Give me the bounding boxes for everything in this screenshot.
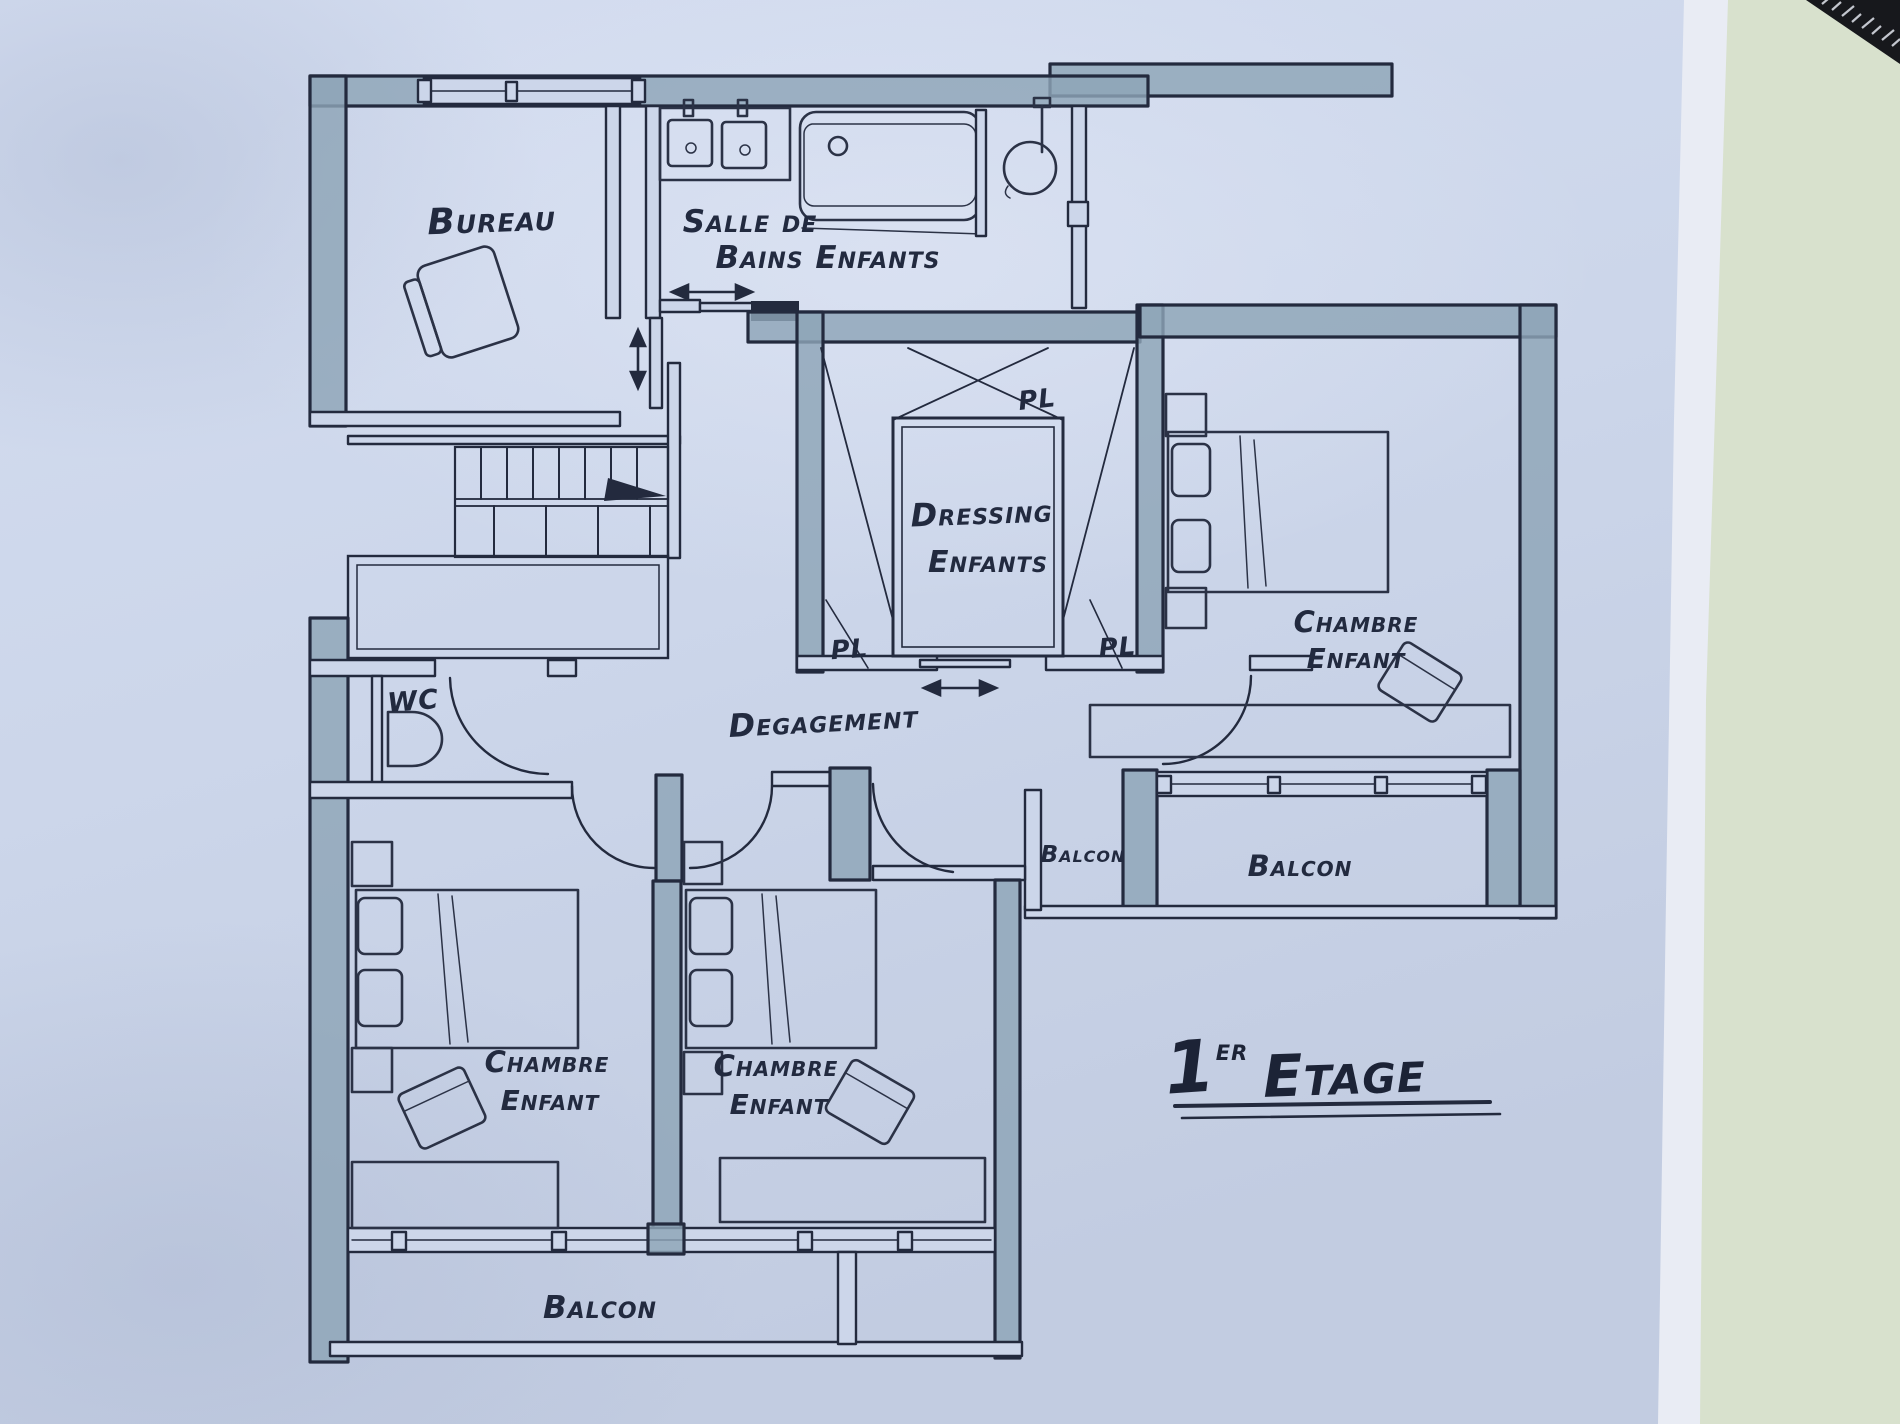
- wall-midroom-north: [772, 772, 830, 786]
- label-balcon-right: Balcon: [1248, 849, 1353, 883]
- title-ordinal: er: [1216, 1033, 1249, 1068]
- label-dressing-1: Dressing: [910, 492, 1053, 535]
- wall-bath-south: [660, 300, 700, 312]
- wall-wc-north: [310, 660, 435, 676]
- wall-east-outer: [1520, 305, 1556, 918]
- wall-west-south: [310, 618, 348, 1362]
- bureau-window: [418, 78, 645, 104]
- wall-west-north: [310, 76, 346, 426]
- label-chambre-middle-2: Enfant: [730, 1088, 829, 1121]
- label-chambre-left-1: Chambre: [485, 1045, 610, 1079]
- door-stub-central: [656, 775, 682, 881]
- label-balcon-small: Balcon: [1041, 842, 1126, 868]
- balcony-rail-east: [1025, 906, 1556, 918]
- label-salle-de-bains-1: Salle de: [683, 204, 818, 240]
- label-pl-bottom-right: PL: [1098, 632, 1138, 665]
- label-bureau: Bureau: [427, 198, 557, 243]
- label-dressing-2: Enfants: [928, 545, 1048, 580]
- label-chambre-right-2: Enfant: [1307, 642, 1406, 675]
- label-pl-top: PL: [1017, 383, 1058, 417]
- sliding-door-leaf-bureau: [650, 318, 662, 408]
- wall-dressing-east: [1137, 305, 1163, 672]
- floor-plan-canvas: Bureau Salle de Bains Enfants Dressing E…: [0, 0, 1900, 1424]
- wall-bureau-south: [310, 412, 620, 426]
- title-word: Etage: [1262, 1037, 1427, 1111]
- wall-vestibule-west: [830, 768, 870, 880]
- wall-midroom-east: [995, 880, 1020, 1358]
- desk-surface-shade: [1700, 0, 1900, 1424]
- floor-plan-photo: Bureau Salle de Bains Enfants Dressing E…: [0, 0, 1900, 1424]
- label-balcon-bottom: Balcon: [543, 1290, 657, 1326]
- wall-vestibule-south: [873, 866, 1025, 880]
- label-pl-bottom-left: PL: [830, 634, 870, 667]
- balcony-post: [838, 1252, 856, 1344]
- wall-bath-east-tick: [1068, 202, 1088, 226]
- wall-corridor-west: [646, 106, 660, 318]
- label-chambre-left-2: Enfant: [501, 1084, 600, 1117]
- wall-chambre-door-stub: [1250, 656, 1312, 670]
- small-balcony-west-line: [1025, 790, 1041, 910]
- wc-shaft-line: [372, 676, 382, 788]
- wall-stairs-east: [668, 363, 680, 558]
- balcony-pier: [1487, 770, 1520, 915]
- balcony-pier: [1123, 770, 1157, 915]
- wall-dressing-west: [797, 312, 823, 672]
- wall-chambre-north: [1140, 305, 1556, 337]
- balcony-rail-south: [330, 1342, 1022, 1356]
- sliding-door-leaf-dressing: [920, 660, 1010, 667]
- chambre-window-band: [1157, 772, 1487, 796]
- label-salle-de-bains-2: Bains Enfants: [716, 240, 941, 276]
- title-number: 1: [1162, 1023, 1219, 1110]
- label-wc: WC: [386, 684, 440, 719]
- wall-wc-north-stub: [548, 660, 576, 676]
- tub-shower-partition: [976, 110, 986, 236]
- wall-wc-south: [310, 782, 572, 798]
- label-chambre-right-1: Chambre: [1294, 605, 1419, 639]
- wall-bedrooms-divider: [653, 881, 681, 1230]
- wall-bureau-east: [606, 106, 620, 318]
- label-chambre-middle-1: Chambre: [714, 1049, 839, 1083]
- stairs-top-line: [348, 436, 680, 444]
